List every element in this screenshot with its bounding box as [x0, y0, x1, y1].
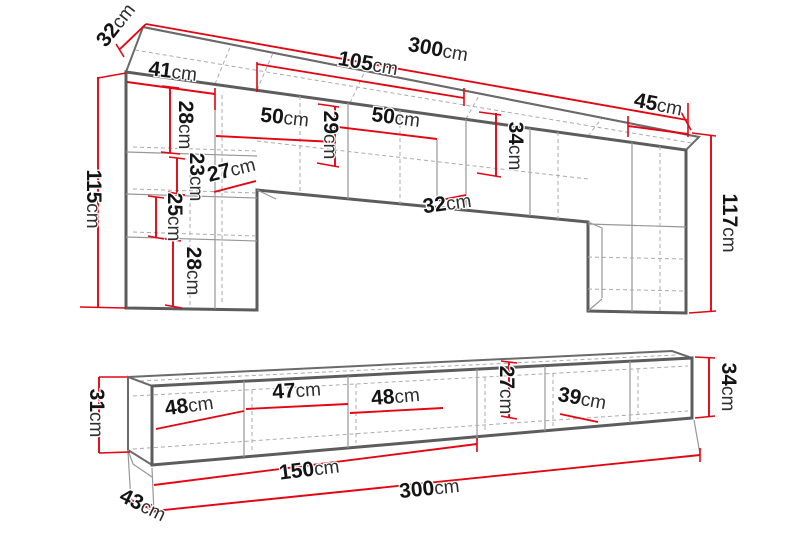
label-bench-half-width: 150cm	[278, 454, 341, 484]
label-bridge-height: 34cm	[504, 122, 527, 171]
label-left-seg-4: 28cm	[182, 247, 205, 296]
label-bench-depth: 43cm	[116, 484, 170, 526]
label-bench-comp-3: 48cm	[370, 383, 421, 410]
label-top-total-width: 300cm	[406, 33, 469, 66]
label-left-seg-1: 28cm	[174, 101, 197, 150]
label-bench-total-width: 300cm	[398, 474, 460, 503]
label-bench-left-height: 31cm	[85, 389, 108, 438]
label-left-column-height: 115cm	[82, 169, 105, 228]
label-left-seg-3: 25cm	[163, 193, 186, 242]
label-bridge-inner-height: 29cm	[319, 111, 342, 160]
top-unit: 32cm 300cm 105cm 41cm 28cm 50cm 29cm 50c…	[80, 0, 741, 313]
label-left-seg-2: 23cm	[185, 153, 208, 202]
label-bench-right-height: 34cm	[717, 363, 740, 412]
label-right-column-width: 45cm	[632, 89, 684, 121]
label-top-depth: 32cm	[92, 0, 140, 51]
diagram-canvas: 32cm 300cm 105cm 41cm 28cm 50cm 29cm 50c…	[0, 0, 800, 533]
bench-left-side-face	[128, 377, 152, 477]
dim-line-bench-height-34	[695, 357, 715, 418]
bottom-unit: 31cm 48cm 47cm 48cm 27cm 39cm 34cm 150cm…	[85, 351, 740, 526]
label-right-column-height: 117cm	[718, 193, 741, 252]
label-bench-inner-height: 27cm	[495, 366, 518, 415]
label-bench-comp-2: 47cm	[271, 377, 321, 403]
furniture-dimension-diagram: 32cm 300cm 105cm 41cm 28cm 50cm 29cm 50c…	[0, 0, 800, 533]
dim-line-height-117	[689, 133, 716, 313]
